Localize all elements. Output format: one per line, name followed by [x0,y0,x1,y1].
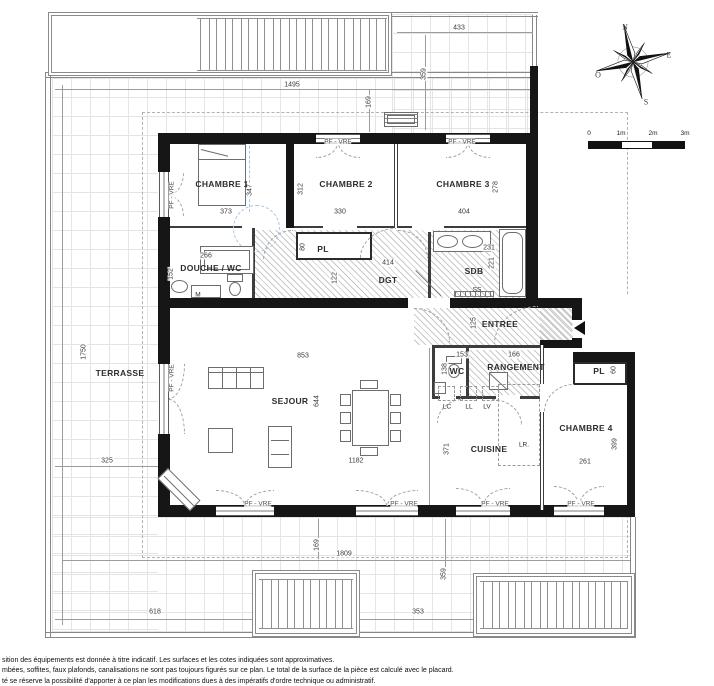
dimension-label: 152 [168,267,175,281]
scale-bar-segment [588,141,621,149]
dimension-label: 1750 [81,343,88,361]
equipment-label-seche-serviettes: SS [473,287,482,294]
labels-layer: CHAMBRE 1CHAMBRE 2CHAMBRE 3CHAMBRE 4DOUC… [0,0,714,686]
floor-plan: CHAMBRE 1CHAMBRE 2CHAMBRE 3CHAMBRE 4DOUC… [0,0,714,686]
dimension-label: 169 [366,95,373,109]
dimension-label: 122 [332,271,339,285]
dimension-label: 60 [611,365,618,375]
compass-rose-icon [593,22,673,102]
dimension-label: 325 [100,458,114,465]
window-type-label: PF - VRE [448,139,475,146]
room-label-terrasse: TERRASSE [96,368,145,378]
window-type-label: PF - VRE [481,501,508,508]
dimension-label: 353 [411,609,425,616]
dimension-label: 1495 [283,82,301,89]
compass-north: N [622,23,628,32]
scale-tick-2m: 2m [648,130,657,137]
compass-south: S [644,98,648,107]
dimension-label: 399 [612,437,619,451]
room-label-placard-chambre-4: PL [593,366,604,376]
dimension-label: 618 [148,609,162,616]
dimension-label: 1182 [347,458,364,465]
dimension-label: 278 [493,180,500,194]
scale-tick-3m: 3m [680,130,689,137]
dimension-label: 373 [219,209,233,216]
room-label-chambre-1: CHAMBRE 1 [195,179,248,189]
compass-east: E [667,51,672,60]
room-label-salle-de-bains: SDB [465,266,484,276]
room-label-chambre-4: CHAMBRE 4 [559,423,612,433]
scale-tick-1m: 1m [616,130,625,137]
room-label-chambre-3: CHAMBRE 3 [436,179,489,189]
scale-bar-segment [653,141,685,149]
dimension-label: 330 [333,209,347,216]
room-label-chambre-2: CHAMBRE 2 [319,179,372,189]
scale-tick-0: 0 [587,130,591,137]
dimension-label: 347 [247,183,254,197]
dimension-label: 312 [298,182,305,196]
dimension-label: 138 [442,362,449,376]
window-type-label: PF - VRE [169,364,176,391]
dimension-label: 853 [296,353,310,360]
compass-west: O [595,71,601,80]
window-type-label: PF - VRE [567,501,594,508]
dimension-label: 80 [300,242,307,252]
disclaimer-line-3: té se réserve la possibilité d'apporter … [2,678,375,685]
room-label-rangement: RANGEMENT [487,362,544,372]
dimension-label: 231 [482,245,496,252]
window-type-label: PF - VRE [390,501,417,508]
room-label-douche-wc: DOUCHE / WC [180,263,241,273]
dimension-label: 153 [455,352,469,359]
compass [593,22,673,102]
dimension-label: 433 [452,25,466,32]
dimension-label: 125 [471,316,478,330]
dimension-label: 359 [441,567,448,581]
dimension-label: 221 [489,256,496,270]
room-label-sejour: SEJOUR [272,396,309,406]
dimension-label: 414 [381,260,395,267]
dimension-label: 166 [507,352,521,359]
dimension-label: 1809 [335,551,353,558]
room-label-entree: ENTREE [482,319,518,329]
dimension-label: 359 [421,67,428,81]
equipment-label-lave-linge: LL [465,404,472,411]
room-label-placard-couloir: PL [317,244,328,254]
equipment-label-refrigerateur: LR. [519,442,529,449]
room-label-degagement: DGT [379,275,398,285]
window-type-label: PF - VRE [244,501,271,508]
dimension-label: 404 [457,209,471,216]
dimension-label: 169 [314,538,321,552]
dimension-label: 371 [444,442,451,456]
equipment-label-machine: M [195,292,200,299]
disclaimer-line-1: sition des équipements est donnée à titr… [2,657,334,664]
scale-bar-segment [621,141,653,149]
disclaimer-line-2: mbées, soffites, faux plafonds, canalisa… [2,667,454,674]
room-label-cuisine: CUISINE [471,444,508,454]
equipment-label-lave-vaisselle: LV [483,404,490,411]
dimension-label: 261 [578,459,592,466]
dimension-label: 266 [199,253,213,260]
dimension-label: 644 [314,394,321,408]
window-type-label: PF - VRE [324,139,351,146]
window-type-label: PF - VRE [169,181,176,208]
equipment-label-lave-char: LC [443,404,451,411]
room-label-wc: WC [450,366,465,376]
